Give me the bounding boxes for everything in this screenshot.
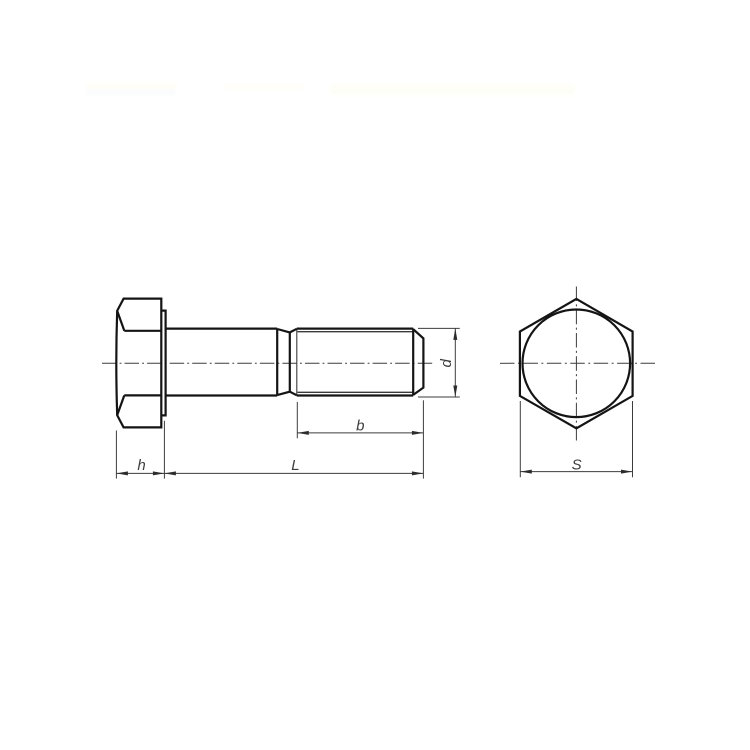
svg-text:b: b [356,417,364,434]
svg-text:L: L [291,457,299,474]
svg-text:S: S [572,456,582,473]
svg-text:h: h [137,457,145,474]
svg-text:d: d [438,358,455,367]
